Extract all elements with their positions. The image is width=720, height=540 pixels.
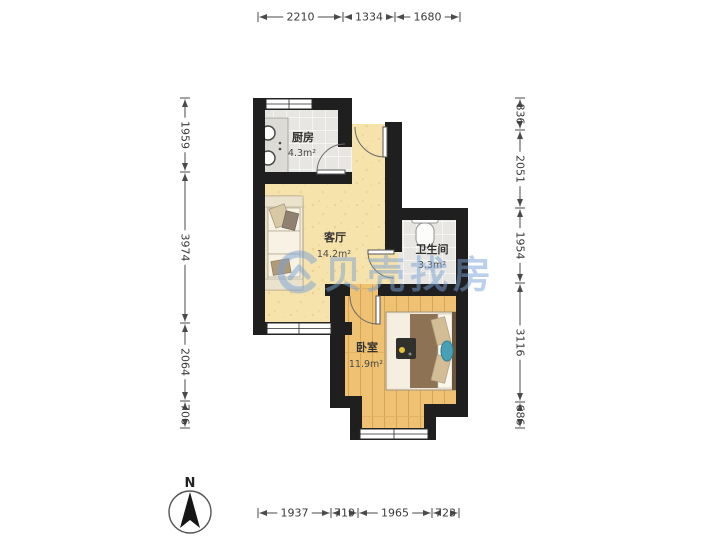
compass-north-label: N — [185, 476, 196, 491]
dimension-label-right-1: 2051 — [514, 155, 527, 183]
bedroom-label: 卧室 — [356, 340, 378, 354]
dimension-label-left-1: 3974 — [179, 234, 192, 262]
dimension-label-left-0: 1959 — [179, 121, 192, 149]
round-cushion — [441, 341, 453, 361]
floor-plan: 厨房 4.3m² 客厅 14.2m² 卫生间 3.3m² 卧室 11.9m² 贝… — [0, 0, 720, 540]
living-label: 客厅 — [323, 230, 346, 244]
dimension-label-left-3: 706 — [179, 404, 192, 425]
dimension-label-top-0: 2210 — [287, 11, 315, 24]
dimension-label-bottom-0: 1937 — [281, 507, 309, 520]
dimension-label-bottom-1: 719 — [334, 507, 355, 520]
compass: N — [169, 476, 211, 533]
dimension-label-bottom-3: 723 — [435, 507, 456, 520]
kitchen-label: 厨房 — [292, 130, 314, 144]
dimension-label-right-0: 836 — [514, 104, 527, 125]
kitchen-window — [266, 99, 312, 109]
bed-tray — [396, 338, 416, 359]
kitchen-area: 4.3m² — [288, 148, 316, 159]
bedroom-area: 11.9m² — [349, 359, 383, 370]
living-room-window — [267, 323, 331, 334]
watermark-text: 贝壳找房 — [324, 253, 496, 297]
bed — [386, 312, 458, 390]
dimension-label-top-2: 1680 — [414, 11, 442, 24]
bay-window — [360, 429, 428, 439]
dimension-label-right-2: 1954 — [514, 232, 527, 260]
dimension-label-right-3: 3116 — [514, 329, 527, 357]
dimension-label-top-1: 1334 — [355, 11, 383, 24]
dimension-label-bottom-2: 1965 — [381, 507, 409, 520]
north-arrow-icon — [180, 492, 200, 528]
dimension-label-right-4: 686 — [514, 405, 527, 426]
dimension-label-left-2: 2064 — [179, 348, 192, 376]
